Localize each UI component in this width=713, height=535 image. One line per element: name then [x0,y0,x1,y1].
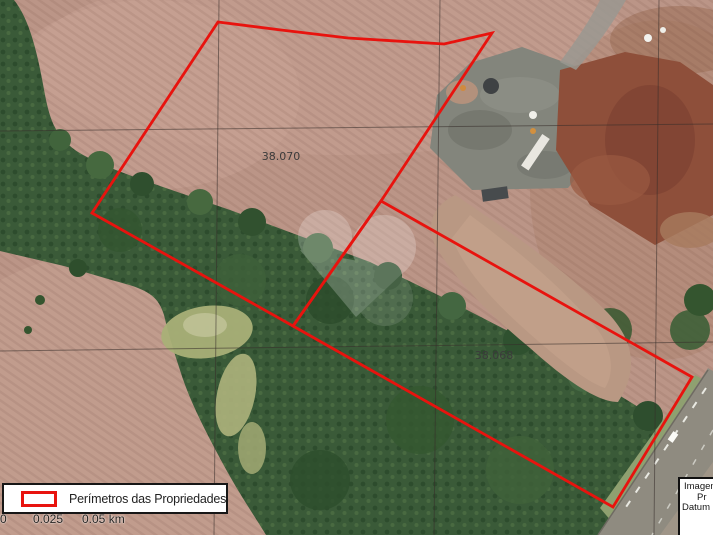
legend-label: Perímetros das Propriedades [69,492,226,506]
scale-bar: 0 0.025 0.05 km [0,512,260,528]
map-viewport[interactable]: 38.070 38.068 Perímetros das Propriedade… [0,0,713,535]
attribution-box: Imagem Pr Datum [678,477,713,535]
attribution-line-3: Datum [682,503,713,514]
parcel-label-38070: 38.070 [262,150,301,163]
satellite-map-canvas[interactable]: 38.070 38.068 [0,0,713,535]
parcel-label-38068: 38.068 [475,349,514,362]
scale-tick-1: 0.025 [33,512,63,526]
perimeter-swatch-icon [21,491,57,507]
legend-panel: Perímetros das Propriedades [2,483,228,514]
scale-tick-2: 0.05 km [82,512,125,526]
scale-tick-0: 0 [0,512,7,526]
attribution-line-1: Imagem [682,482,713,493]
